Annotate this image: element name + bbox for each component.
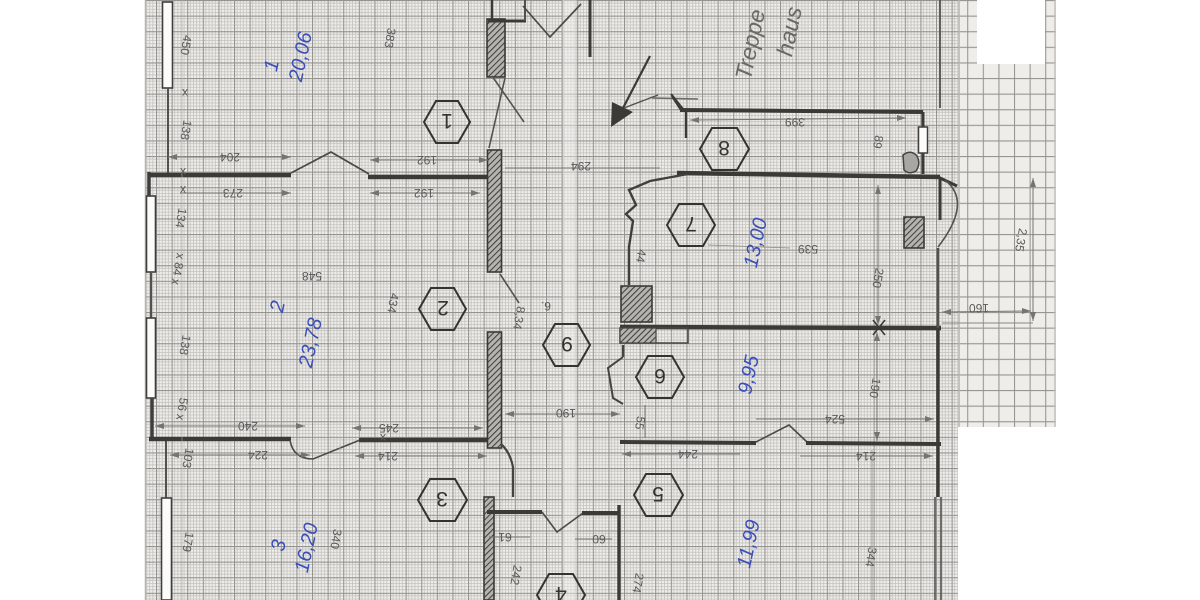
svg-text:5: 5 — [652, 482, 664, 505]
svg-text:539: 539 — [798, 242, 818, 256]
svg-text:x: x — [380, 431, 386, 445]
svg-text:7: 7 — [685, 212, 697, 235]
svg-text:190: 190 — [556, 406, 576, 420]
svg-text:548: 548 — [302, 269, 322, 283]
svg-text:8: 8 — [718, 136, 730, 159]
svg-text:x: x — [182, 86, 188, 100]
svg-text:294: 294 — [571, 159, 591, 173]
svg-text:x: x — [180, 183, 186, 197]
svg-text:44: 44 — [633, 248, 649, 264]
svg-text:244: 244 — [678, 447, 698, 461]
svg-text:55: 55 — [632, 415, 648, 431]
svg-text:240: 240 — [238, 419, 258, 433]
svg-text:6.: 6. — [541, 299, 551, 313]
svg-text:204: 204 — [220, 150, 240, 164]
svg-text:x: x — [180, 165, 186, 179]
svg-text:60: 60 — [592, 532, 606, 546]
svg-text:192: 192 — [414, 186, 434, 200]
svg-text:214: 214 — [856, 449, 876, 463]
svg-text:160: 160 — [969, 301, 989, 315]
svg-text:3: 3 — [436, 487, 448, 510]
svg-text:192: 192 — [417, 153, 437, 167]
svg-text:273: 273 — [223, 186, 243, 200]
svg-text:214: 214 — [378, 449, 398, 463]
svg-text:224: 224 — [248, 448, 268, 462]
svg-text:89: 89 — [870, 134, 886, 150]
svg-text:2: 2 — [437, 296, 449, 319]
svg-text:9: 9 — [561, 332, 573, 355]
svg-text:61: 61 — [498, 530, 512, 544]
svg-text:1: 1 — [441, 109, 453, 132]
svg-text:6: 6 — [654, 364, 666, 387]
svg-text:399: 399 — [785, 115, 805, 129]
svg-text:524: 524 — [825, 412, 845, 426]
svg-text:4: 4 — [555, 582, 567, 600]
